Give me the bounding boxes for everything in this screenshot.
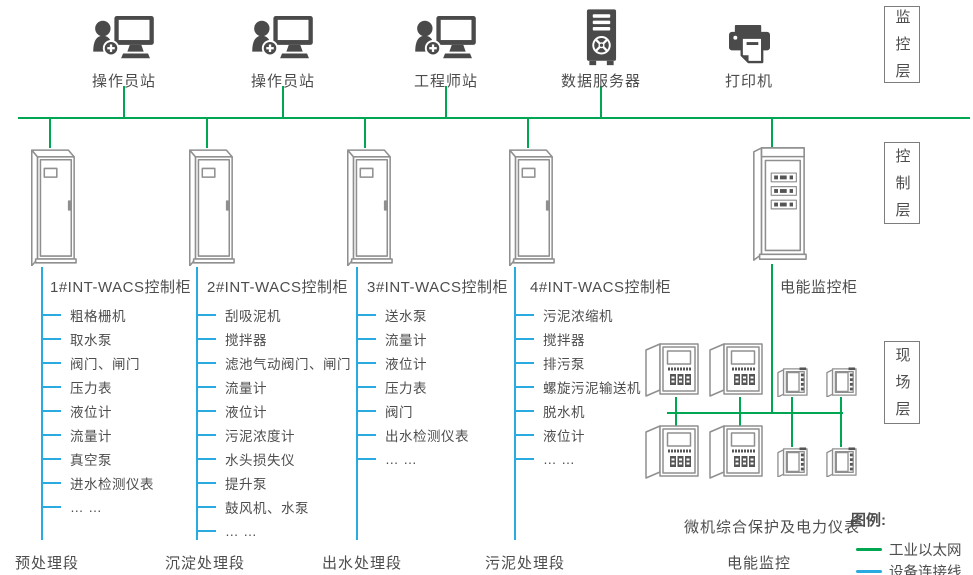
cabinet-1-label: 1#INT-WACS控制柜 (50, 276, 191, 297)
device-item: … … (196, 519, 257, 543)
device-item: 搅拌器 (514, 327, 585, 351)
operator-station-2: 操作员站 (221, 8, 345, 91)
legend-item-device-line: 设备连接线 (856, 561, 962, 575)
device-item-label: 螺旋污泥输送机 (543, 377, 641, 397)
device-tick-line (356, 458, 376, 460)
cabinet-2-label: 2#INT-WACS控制柜 (207, 276, 348, 297)
device-item: 水头损失仪 (196, 447, 295, 471)
device-tick-line (514, 410, 534, 412)
station-label: 数据服务器 (539, 70, 663, 91)
device-item-label: 污泥浓缩机 (543, 305, 613, 325)
device-item: 取水泵 (41, 327, 112, 351)
printer-station: 打印机 (687, 8, 811, 91)
device-item: 液位计 (514, 423, 585, 447)
device-item: 污泥浓度计 (196, 423, 295, 447)
layer-box-field: 现场层 (884, 341, 920, 424)
station-label: 工程师站 (384, 70, 508, 91)
device-item: 阀门 (356, 399, 413, 423)
operator-workstation-icon (221, 8, 345, 66)
ethernet-drop-cabinet-3 (364, 119, 366, 148)
device-item-label: 液位计 (225, 401, 267, 421)
ethernet-drop-cabinet-2 (206, 119, 208, 148)
section-label-effluent: 出水处理段 (322, 552, 402, 573)
meter-link-line (739, 397, 741, 412)
device-item-label: 液位计 (70, 401, 112, 421)
device-item: 进水检测仪表 (41, 471, 154, 495)
device-item-label: 提升泵 (225, 473, 267, 493)
device-item-label: 粗格栅机 (70, 305, 126, 325)
device-item: 流量计 (356, 327, 427, 351)
section-label-sludge: 污泥处理段 (485, 552, 565, 573)
device-item-label: … … (70, 500, 102, 515)
device-tick-line (41, 482, 61, 484)
meter-link-line (840, 414, 842, 447)
device-tick-line (41, 410, 61, 412)
server-tower-icon (539, 8, 663, 66)
ethernet-line-swatch (856, 548, 882, 551)
device-tick-line (514, 362, 534, 364)
device-item: 液位计 (196, 399, 267, 423)
ethernet-meter-bus-line (667, 412, 843, 414)
device-line-swatch (856, 570, 882, 573)
device-tick-line (196, 338, 216, 340)
device-item: … … (41, 495, 102, 519)
device-tick-line (41, 386, 61, 388)
device-tick-line (196, 506, 216, 508)
device-item-label: 脱水机 (543, 401, 585, 421)
device-item: … … (514, 447, 575, 471)
control-cabinet-4-icon (504, 146, 556, 266)
operator-station-1: 操作员站 (62, 8, 186, 91)
ethernet-drop-cabinet-4 (527, 119, 529, 148)
device-tick-line (356, 386, 376, 388)
device-tick-line (356, 410, 376, 412)
device-item: 污泥浓缩机 (514, 303, 613, 327)
ethernet-power-cabinet-to-meters (771, 264, 773, 413)
station-label: 操作员站 (62, 70, 186, 91)
device-item-label: 出水检测仪表 (385, 425, 469, 445)
device-item-label: 流量计 (70, 425, 112, 445)
control-cabinet-1-icon (26, 146, 78, 266)
device-item: 鼓风机、水泵 (196, 495, 309, 519)
device-item: 出水检测仪表 (356, 423, 469, 447)
legend-title: 图例: (851, 509, 886, 530)
device-item-label: 排污泵 (543, 353, 585, 373)
device-tick-line (41, 338, 61, 340)
device-item-label: 送水泵 (385, 305, 427, 325)
engineer-station: 工程师站 (384, 8, 508, 91)
meter-link-line (840, 397, 842, 412)
device-item-label: 取水泵 (70, 329, 112, 349)
device-tick-line (514, 386, 534, 388)
station-label: 操作员站 (221, 70, 345, 91)
control-cabinet-3-icon (342, 146, 394, 266)
device-item-label: 滤池气动阀门、闸门 (225, 353, 351, 373)
protection-relay-icon (708, 423, 764, 479)
device-item-label: 刮吸泥机 (225, 305, 281, 325)
device-item: 流量计 (41, 423, 112, 447)
protection-relay-icon (644, 341, 700, 397)
device-item-label: 流量计 (225, 377, 267, 397)
device-item: 液位计 (356, 351, 427, 375)
device-item: 提升泵 (196, 471, 267, 495)
device-tick-line (514, 458, 534, 460)
device-item-label: 压力表 (70, 377, 112, 397)
device-tick-line (41, 434, 61, 436)
scada-architecture-diagram: 操作员站 操作员站 工程师站 数据服务器 打印机 监控层 控制层 现场层 1#I… (0, 0, 973, 575)
power-meter-icon (776, 367, 808, 397)
power-meter-icon (825, 367, 857, 397)
layer-box-monitoring: 监控层 (884, 6, 920, 83)
device-tick-line (196, 458, 216, 460)
device-item-label: 鼓风机、水泵 (225, 497, 309, 517)
device-tick-line (41, 314, 61, 316)
ethernet-drop-power-cabinet (771, 119, 773, 149)
device-item-label: 搅拌器 (543, 329, 585, 349)
device-item-label: 阀门、闸门 (70, 353, 140, 373)
device-item-label: 阀门 (385, 401, 413, 421)
station-label: 打印机 (687, 70, 811, 91)
device-item: 脱水机 (514, 399, 585, 423)
device-item: 排污泵 (514, 351, 585, 375)
device-tick-line (196, 434, 216, 436)
device-item-label: 流量计 (385, 329, 427, 349)
device-item-label: 液位计 (385, 353, 427, 373)
legend-label: 工业以太网 (889, 539, 962, 560)
device-tick-line (514, 338, 534, 340)
device-item: 滤池气动阀门、闸门 (196, 351, 351, 375)
data-server: 数据服务器 (539, 8, 663, 91)
control-cabinet-2-icon (184, 146, 236, 266)
device-item: 压力表 (356, 375, 427, 399)
device-tick-line (356, 338, 376, 340)
meter-link-line (791, 397, 793, 412)
device-tick-line (196, 410, 216, 412)
device-item-label: … … (385, 452, 417, 467)
device-item-label: 真空泵 (70, 449, 112, 469)
device-item-label: 污泥浓度计 (225, 425, 295, 445)
power-monitoring-cabinet-icon (746, 146, 810, 264)
device-item: 送水泵 (356, 303, 427, 327)
device-item: 流量计 (196, 375, 267, 399)
ethernet-backbone-line (18, 117, 970, 119)
device-item-label: … … (543, 452, 575, 467)
ethernet-drop-cabinet-1 (49, 119, 51, 148)
layer-box-control: 控制层 (884, 142, 920, 224)
engineer-workstation-icon (384, 8, 508, 66)
device-tick-line (196, 530, 216, 532)
device-item: 刮吸泥机 (196, 303, 281, 327)
device-item: 螺旋污泥输送机 (514, 375, 641, 399)
device-tick-line (196, 314, 216, 316)
section-label-pretreatment: 预处理段 (15, 552, 79, 573)
device-item: 真空泵 (41, 447, 112, 471)
power-cabinet-label: 电能监控柜 (780, 276, 858, 297)
device-item: 压力表 (41, 375, 112, 399)
device-tick-line (356, 362, 376, 364)
device-tick-line (41, 458, 61, 460)
legend-item-ethernet: 工业以太网 (856, 539, 962, 560)
device-tick-line (41, 362, 61, 364)
device-tick-line (41, 506, 61, 508)
printer-icon (687, 8, 811, 66)
power-meter-icon (825, 447, 857, 477)
device-item-label: 水头损失仪 (225, 449, 295, 469)
device-item: 搅拌器 (196, 327, 267, 351)
section-label-power: 电能监控 (727, 552, 791, 573)
meters-caption: 微机综合保护及电力仪表 (684, 516, 860, 537)
device-item-label: 液位计 (543, 425, 585, 445)
device-item-label: … … (225, 524, 257, 539)
device-item-label: 搅拌器 (225, 329, 267, 349)
device-item-label: 压力表 (385, 377, 427, 397)
section-label-sedimentation: 沉淀处理段 (165, 552, 245, 573)
device-tick-line (196, 386, 216, 388)
device-item: 粗格栅机 (41, 303, 126, 327)
power-meter-icon (776, 447, 808, 477)
device-item: 液位计 (41, 399, 112, 423)
device-tick-line (356, 314, 376, 316)
cabinet-3-label: 3#INT-WACS控制柜 (367, 276, 508, 297)
operator-workstation-icon (62, 8, 186, 66)
protection-relay-icon (644, 423, 700, 479)
protection-relay-icon (708, 341, 764, 397)
meter-link-line (791, 414, 793, 447)
device-tick-line (196, 362, 216, 364)
device-tick-line (514, 434, 534, 436)
device-tick-line (196, 482, 216, 484)
device-item: 阀门、闸门 (41, 351, 140, 375)
device-item: … … (356, 447, 417, 471)
device-item-label: 进水检测仪表 (70, 473, 154, 493)
device-tick-line (514, 314, 534, 316)
meter-link-line (675, 397, 677, 412)
cabinet-4-label: 4#INT-WACS控制柜 (530, 276, 671, 297)
device-tick-line (356, 434, 376, 436)
legend-label: 设备连接线 (889, 561, 962, 575)
